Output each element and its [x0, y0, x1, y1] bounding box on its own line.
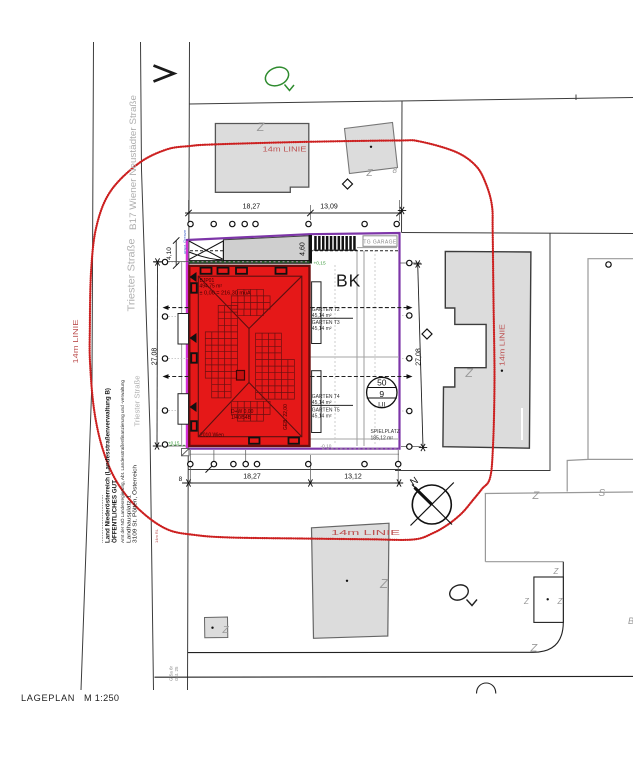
svg-text:SPIELPLATZ: SPIELPLATZ — [371, 429, 400, 435]
svg-text:14m LINIE: 14m LINIE — [263, 145, 307, 154]
svg-text:8: 8 — [179, 476, 183, 483]
svg-text:Land Niederösterreich (Landess: Land Niederösterreich (Landesstraßenverw… — [106, 388, 112, 543]
svg-text:14m RL: 14m RL — [154, 528, 159, 543]
svg-text:G 5a 6r: G 5a 6r — [169, 665, 174, 681]
svg-text:B17 Wiener Neustädter Straße: B17 Wiener Neustädter Straße — [128, 95, 139, 230]
svg-text:B: B — [628, 616, 633, 626]
svg-text:GEB. 22,00: GEB. 22,00 — [283, 404, 289, 430]
svg-text:Z: Z — [532, 490, 541, 502]
svg-text:50: 50 — [377, 378, 387, 388]
svg-text:45,14 m²: 45,14 m² — [312, 400, 332, 406]
svg-text:18,27: 18,27 — [243, 474, 261, 481]
svg-text:4,10: 4,10 — [166, 247, 173, 260]
svg-text:ÖFFENTLICHES GUT: ÖFFENTLICHES GUT — [112, 480, 119, 543]
svg-text:+0,15: +0,15 — [314, 261, 326, 267]
svg-text:45,14 m²: 45,14 m² — [312, 413, 332, 419]
svg-text:27,08: 27,08 — [151, 348, 158, 366]
svg-text:18,27: 18,27 — [243, 204, 261, 211]
svg-text:494,75 m²: 494,75 m² — [200, 284, 223, 290]
svg-text:TG GARAGE: TG GARAGE — [363, 239, 397, 245]
svg-text:185,12 m²: 185,12 m² — [371, 435, 394, 441]
svg-text:Z: Z — [256, 120, 265, 134]
svg-text:M 1:250: M 1:250 — [84, 693, 119, 703]
svg-text:S: S — [599, 488, 606, 499]
svg-text:Gst. 25: Gst. 25 — [174, 666, 179, 681]
svg-text:27,08: 27,08 — [415, 348, 422, 366]
svg-text:-0,10: -0,10 — [321, 444, 332, 450]
svg-text:45,14 m²: 45,14 m² — [312, 326, 332, 332]
svg-text:14m LINIE: 14m LINIE — [331, 528, 400, 537]
svg-text:Z: Z — [465, 366, 474, 380]
svg-text:+0,15: +0,15 — [168, 441, 180, 446]
svg-text:8: 8 — [393, 166, 398, 175]
svg-text:3109 St. Pölten, Österreich: 3109 St. Pölten, Österreich — [132, 465, 139, 543]
svg-text:14m LINIE: 14m LINIE — [498, 324, 507, 366]
svg-text:D+W 0,00: D+W 0,00 — [231, 409, 254, 415]
svg-text:Triester Straße: Triester Straße — [133, 376, 142, 427]
svg-text:9: 9 — [379, 389, 384, 399]
svg-text:Z: Z — [379, 576, 389, 591]
svg-text:14m LINIE: 14m LINIE — [71, 319, 80, 363]
svg-text:1/40/54B: 1/40/54B — [231, 415, 252, 421]
svg-text:Amt der NÖ Landesregierung, Ab: Amt der NÖ Landesregierung, Abt. Landess… — [119, 380, 125, 543]
svg-text:13,12: 13,12 — [344, 474, 362, 481]
svg-text:Z: Z — [366, 168, 374, 179]
svg-text:LAGEPLAN: LAGEPLAN — [21, 693, 75, 703]
svg-text:4,60: 4,60 — [300, 242, 307, 256]
svg-text:± 0,00 = 216,30 müA: ± 0,00 = 216,30 müA — [200, 291, 252, 297]
svg-text:BK: BK — [336, 271, 361, 291]
svg-text:urspr. Grenze: urspr. Grenze — [182, 229, 187, 254]
svg-text:Z: Z — [530, 643, 539, 655]
svg-text:13,09: 13,09 — [320, 204, 338, 211]
svg-text:.............................: ............................. — [99, 494, 105, 543]
svg-text:Z: Z — [222, 625, 230, 636]
svg-text:45,14 m²: 45,14 m² — [312, 313, 332, 319]
svg-text:2010 Wien: 2010 Wien — [200, 433, 224, 439]
svg-text:I,II: I,II — [378, 402, 385, 409]
svg-text:Triester Straße: Triester Straße — [126, 238, 138, 311]
